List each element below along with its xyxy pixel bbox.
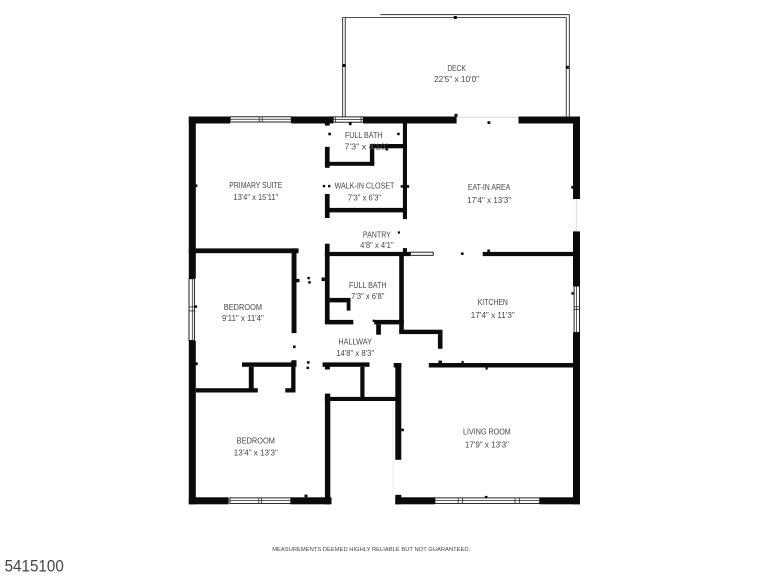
svg-text:14'8" x 8'3": 14'8" x 8'3" [336, 349, 374, 358]
svg-text:5415100: 5415100 [5, 557, 64, 575]
svg-text:9'11" x 11'4": 9'11" x 11'4" [222, 314, 264, 323]
svg-text:BEDROOM: BEDROOM [237, 437, 276, 446]
svg-text:KITCHEN: KITCHEN [478, 298, 508, 307]
svg-text:4'8" x 4'1": 4'8" x 4'1" [360, 241, 394, 250]
svg-text:FULL BATH: FULL BATH [349, 281, 387, 290]
svg-text:MEASUREMENTS DEEMED HIGHLY REL: MEASUREMENTS DEEMED HIGHLY RELIABLE BUT … [272, 547, 470, 553]
svg-text:13'4" x 13'3": 13'4" x 13'3" [234, 449, 278, 458]
svg-text:17'4" x 13'3": 17'4" x 13'3" [467, 196, 511, 205]
svg-text:17'4" x 11'3": 17'4" x 11'3" [471, 311, 515, 320]
svg-text:17'9" x 13'3": 17'9" x 13'3" [465, 441, 509, 450]
svg-text:7'3" x 6'3": 7'3" x 6'3" [348, 194, 381, 203]
svg-text:DECK: DECK [447, 64, 466, 73]
svg-text:HALLWAY: HALLWAY [338, 338, 372, 347]
svg-text:FULL BATH: FULL BATH [345, 131, 383, 140]
svg-text:22'5" x 10'0": 22'5" x 10'0" [434, 75, 479, 84]
svg-text:7'3" x 6'8": 7'3" x 6'8" [351, 292, 384, 301]
svg-text:EAT-IN AREA: EAT-IN AREA [468, 183, 511, 192]
svg-text:PRIMARY SUITE: PRIMARY SUITE [229, 181, 282, 190]
svg-text:LIVING ROOM: LIVING ROOM [463, 427, 511, 436]
svg-text:BEDROOM: BEDROOM [224, 303, 263, 312]
svg-text:PANTRY: PANTRY [363, 230, 392, 239]
svg-text:13'4" x 15'11": 13'4" x 15'11" [233, 193, 278, 202]
svg-text:7'3" x 4'10": 7'3" x 4'10" [345, 143, 389, 152]
svg-text:WALK-IN CLOSET: WALK-IN CLOSET [335, 181, 395, 190]
